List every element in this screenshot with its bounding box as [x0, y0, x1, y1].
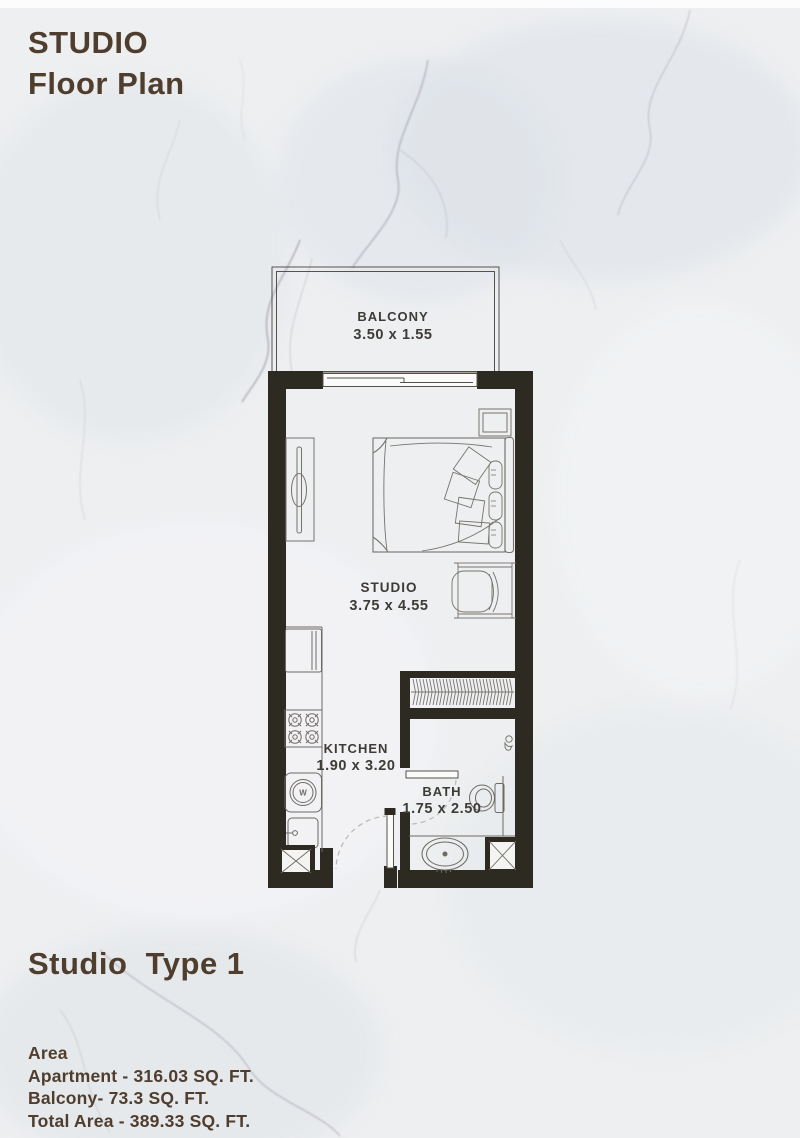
- closet-top-wall: [400, 671, 515, 678]
- studio-dims: 3.75 x 4.55: [349, 598, 428, 614]
- entrance-door: [336, 808, 396, 869]
- desk-and-chair: [452, 563, 516, 618]
- studio-label: STUDIO: [360, 580, 417, 595]
- headboard: [505, 438, 514, 553]
- shaft-left: [280, 848, 313, 875]
- bath-dims: 1.75 x 2.50: [402, 801, 481, 817]
- area-summary: Area Apartment - 316.03 SQ. FT. Balcony-…: [28, 1042, 254, 1132]
- bath-label: BATH: [422, 784, 461, 799]
- console-dresser: [286, 438, 314, 541]
- stove: [285, 710, 322, 747]
- floor-plan-page: W: [0, 0, 800, 1138]
- balcony-label: BALCONY: [357, 309, 428, 324]
- washer-label: W: [299, 789, 307, 798]
- area-line-apartment: Apartment - 316.03 SQ. FT.: [28, 1065, 254, 1088]
- bolster-pillows: [489, 461, 502, 548]
- page-title-line2: Floor Plan: [28, 63, 185, 104]
- paper-holder-icon: [505, 736, 512, 750]
- door-swing-arc: [336, 816, 388, 869]
- sliding-door: [323, 374, 477, 387]
- area-line-balcony: Balcony- 73.3 SQ. FT.: [28, 1087, 254, 1110]
- kitchen-dims: 1.90 x 3.20: [316, 758, 395, 774]
- nightstand: [479, 409, 511, 436]
- wardrobe-closet: [411, 679, 514, 705]
- kitchen-label: KITCHEN: [324, 741, 389, 756]
- fridge: [286, 629, 322, 672]
- page-title: STUDIO Floor Plan: [28, 22, 185, 104]
- closet-bottom-wall: [400, 708, 515, 719]
- door-hinge-block: [384, 866, 397, 888]
- area-line-total: Total Area - 389.33 SQ. FT.: [28, 1110, 254, 1133]
- bath-sink: [422, 838, 468, 873]
- page-title-line1: STUDIO: [28, 22, 185, 63]
- washing-machine: W: [285, 773, 322, 812]
- area-heading: Area: [28, 1042, 254, 1065]
- bath-partition-lower: [400, 812, 410, 888]
- kitchen-sink: [286, 818, 318, 848]
- wall-left: [268, 371, 286, 888]
- wall-right: [515, 371, 533, 888]
- bath-partition-upper: [400, 671, 410, 768]
- balcony-dims: 3.50 x 1.55: [353, 327, 432, 343]
- shower-shaft-right: [488, 840, 518, 872]
- bed: [373, 438, 514, 553]
- plan-type-title: Studio Type 1: [28, 946, 245, 982]
